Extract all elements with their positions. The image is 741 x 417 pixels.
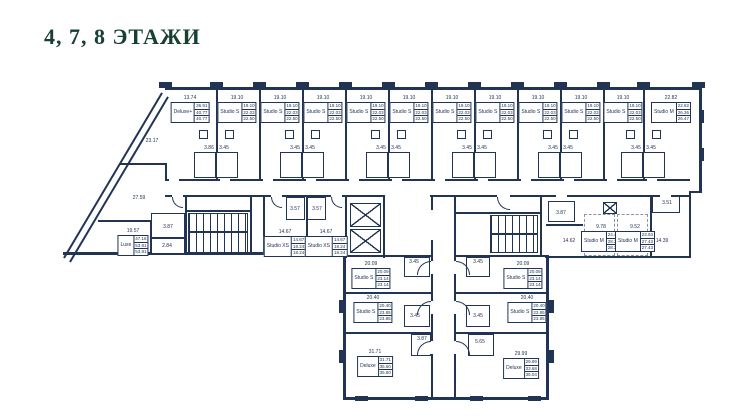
wall bbox=[185, 196, 187, 255]
unit-room-area: 20.40 bbox=[521, 295, 534, 301]
corridor-wall bbox=[454, 196, 456, 397]
unit-areas-box: Studio XS 14.67 18.24 18.24 bbox=[305, 236, 348, 257]
unit-label: 19.57 Luxe 47.16 53.81 53.81 bbox=[117, 228, 148, 256]
room-area-label: 3.45 bbox=[477, 145, 487, 151]
unit-type: Studio M bbox=[652, 103, 676, 122]
unit-label: 31.71 Deluxe 31.71 35.60 35.60 bbox=[357, 349, 393, 377]
wall bbox=[689, 193, 691, 258]
unit-label: 19.10 Studio S 19.10 22.03 22.50 bbox=[603, 95, 642, 123]
unit-area-values: 19.10 22.03 22.50 bbox=[627, 103, 641, 122]
unit-area-values: 20.09 23.14 23.14 bbox=[375, 269, 389, 288]
unit-room-area: 19.10 bbox=[532, 95, 545, 101]
unit-areas-box: Luxe 47.16 53.81 53.81 bbox=[117, 235, 148, 256]
unit-area-3: 18.24 bbox=[292, 249, 305, 256]
unit-areas-box: Deluxe 29.99 33.68 35.04 bbox=[503, 358, 539, 379]
wall bbox=[455, 212, 540, 214]
room-area-label: 23.17 bbox=[146, 138, 159, 144]
door-gap bbox=[349, 179, 359, 181]
pier bbox=[339, 82, 352, 88]
unit-room-area: 14.67 bbox=[320, 229, 333, 235]
unit-area-values: 19.10 22.03 22.50 bbox=[370, 103, 384, 122]
unit-area-3: 27.43 bbox=[641, 244, 654, 251]
unit-room-area: 20.09 bbox=[365, 261, 378, 267]
unit-areas-box: Studio XS 14.67 18.24 18.24 bbox=[264, 236, 307, 257]
unit-areas-box: Studio S 20.09 23.14 23.14 bbox=[351, 268, 390, 289]
bathroom bbox=[194, 152, 216, 178]
pier bbox=[339, 350, 344, 363]
floor-plan: 13.74 Deluxe+ 36.91 40.77 40.77 19.10 St… bbox=[0, 0, 741, 417]
unit-area-3: 22.50 bbox=[414, 115, 427, 122]
unit-area-values: 36.91 40.77 40.77 bbox=[194, 103, 208, 122]
unit-room-area: 19.10 bbox=[489, 95, 502, 101]
room-area-label: 3.51 bbox=[662, 200, 672, 206]
pier bbox=[253, 82, 266, 88]
pier bbox=[699, 148, 704, 161]
unit-areas-box: Studio S 19.10 22.03 22.50 bbox=[603, 102, 642, 123]
door-arc bbox=[497, 197, 510, 210]
unit-area-3: 35.04 bbox=[525, 371, 538, 378]
room-area-label: 3.45 bbox=[391, 145, 401, 151]
unit-area-3: 53.81 bbox=[134, 248, 147, 255]
wall bbox=[456, 292, 546, 294]
room-area-label: 3.57 bbox=[312, 206, 322, 212]
door-gap bbox=[556, 195, 567, 197]
wall bbox=[165, 163, 167, 180]
door-gap bbox=[220, 179, 230, 181]
unit-area-values: 19.10 22.03 22.50 bbox=[542, 103, 556, 122]
pier bbox=[549, 350, 554, 363]
room-area-label: 3.86 bbox=[204, 145, 214, 151]
unit-area-values: 20.09 23.14 23.14 bbox=[527, 269, 541, 288]
door-arc bbox=[172, 197, 183, 208]
pier bbox=[549, 300, 554, 313]
room-area-label: 3.45 bbox=[409, 259, 419, 265]
unit-area-values: 19.10 22.03 22.50 bbox=[284, 103, 298, 122]
unit-room-area: 19.10 bbox=[360, 95, 373, 101]
room-area-label: 3.45 bbox=[631, 145, 641, 151]
pier bbox=[637, 82, 650, 88]
room-area-label: 14.62 bbox=[563, 238, 576, 244]
room-area-label: 14.39 bbox=[656, 238, 669, 244]
unit-type: Studio M bbox=[616, 232, 640, 251]
unit-type: Studio S bbox=[261, 103, 284, 122]
wall bbox=[120, 163, 167, 165]
unit-room-area: 19.57 bbox=[127, 228, 140, 234]
door-gap bbox=[564, 179, 574, 181]
unit-areas-box: Studio S 19.10 22.03 22.50 bbox=[561, 102, 600, 123]
unit-area-values: 47.16 53.81 53.81 bbox=[133, 236, 147, 255]
unit-areas-box: Studio S 19.10 22.03 22.50 bbox=[389, 102, 428, 123]
room-area-label: 3.45 bbox=[462, 145, 472, 151]
unit-areas-box: Studio M 23.93 27.43 27.43 bbox=[615, 231, 655, 252]
room-area-label: 3.45 bbox=[290, 145, 300, 151]
unit-label: 19.10 Studio S 19.10 22.03 22.50 bbox=[518, 95, 557, 123]
stair-landing bbox=[188, 231, 248, 233]
kitchen-fixture bbox=[285, 130, 294, 139]
unit-room-area: 29.99 bbox=[515, 351, 528, 357]
unit-label: 9.52 Studio M 23.93 27.43 27.43 bbox=[615, 224, 655, 252]
wall bbox=[185, 210, 252, 212]
unit-label: 19.10 Studio S 19.10 22.03 22.50 bbox=[475, 95, 514, 123]
unit-type: Studio M bbox=[582, 232, 606, 251]
pier bbox=[296, 82, 309, 88]
unit-type: Studio S bbox=[562, 103, 585, 122]
room-area-label: 3.45 bbox=[473, 259, 483, 265]
door-gap bbox=[392, 179, 402, 181]
unit-type: Deluxe+ bbox=[172, 103, 194, 122]
unit-room-area: 14.67 bbox=[279, 229, 292, 235]
room-area-label: 27.59 bbox=[133, 195, 146, 201]
pier bbox=[554, 82, 567, 88]
unit-area-3: 35.60 bbox=[379, 369, 392, 376]
door-arc bbox=[271, 197, 282, 208]
wall bbox=[383, 196, 385, 258]
door-gap bbox=[169, 179, 179, 181]
unit-areas-box: Studio S 19.10 22.03 22.50 bbox=[260, 102, 299, 123]
unit-type: Studio S bbox=[433, 103, 456, 122]
unit-area-3: 23.85 bbox=[532, 315, 545, 322]
unit-label: 13.74 Deluxe+ 36.91 40.77 40.77 bbox=[171, 95, 210, 123]
elevator-shaft bbox=[350, 203, 381, 227]
staircase bbox=[188, 213, 248, 253]
pier bbox=[528, 396, 541, 401]
pier bbox=[382, 82, 395, 88]
pier bbox=[339, 300, 344, 313]
unit-area-3: 26.47 bbox=[677, 115, 690, 122]
bathroom bbox=[280, 152, 302, 178]
room-area-label: 2.84 bbox=[162, 243, 172, 249]
kitchen-fixture bbox=[483, 130, 492, 139]
unit-type: Studio S bbox=[347, 103, 370, 122]
wall bbox=[343, 397, 549, 400]
unit-label: 20.09 Studio S 20.09 23.14 23.14 bbox=[503, 261, 542, 289]
room-area-label: 3.87 bbox=[556, 210, 566, 216]
unit-area-3: 22.50 bbox=[543, 115, 556, 122]
unit-areas-box: Studio S 19.10 22.03 22.50 bbox=[475, 102, 514, 123]
room-area-label: 3.45 bbox=[410, 313, 420, 319]
bathroom bbox=[216, 152, 238, 178]
unit-area-values: 20.40 23.85 23.85 bbox=[377, 303, 391, 322]
unit-type: Studio S bbox=[304, 103, 327, 122]
unit-area-3: 22.50 bbox=[371, 115, 384, 122]
unit-area-values: 14.67 18.24 18.24 bbox=[332, 237, 346, 256]
unit-room-area: 9.52 bbox=[630, 224, 640, 230]
unit-areas-box: Studio S 20.40 23.85 23.85 bbox=[353, 302, 392, 323]
wall bbox=[546, 255, 549, 400]
room-area-label: 3.45 bbox=[376, 145, 386, 151]
unit-area-values: 19.10 22.03 22.50 bbox=[241, 103, 255, 122]
unit-room-area: 20.09 bbox=[517, 261, 530, 267]
unit-room-area: 19.10 bbox=[446, 95, 459, 101]
room-area-label: 3.45 bbox=[473, 313, 483, 319]
room-area-label: 3.45 bbox=[219, 145, 229, 151]
bathroom bbox=[621, 152, 643, 178]
pier bbox=[415, 396, 428, 401]
shaft bbox=[603, 202, 617, 214]
unit-areas-box: Studio S 20.09 23.14 23.14 bbox=[503, 268, 542, 289]
wall bbox=[545, 256, 691, 258]
bathroom bbox=[474, 152, 496, 178]
unit-area-3: 23.85 bbox=[378, 315, 391, 322]
pier bbox=[692, 82, 705, 88]
room-area-label: 3.45 bbox=[646, 145, 656, 151]
door-arc bbox=[331, 197, 342, 208]
unit-label: 19.10 Studio S 19.10 22.03 22.50 bbox=[389, 95, 428, 123]
elevator-shaft bbox=[350, 229, 381, 253]
unit-type: Studio S bbox=[354, 303, 377, 322]
unit-areas-box: Studio S 20.40 23.85 23.85 bbox=[507, 302, 546, 323]
unit-area-3: 23.14 bbox=[528, 281, 541, 288]
kitchen-fixture bbox=[652, 130, 661, 139]
kitchen-fixture bbox=[371, 130, 380, 139]
room-area-label: 3.45 bbox=[305, 145, 315, 151]
bathroom bbox=[468, 334, 494, 356]
unit-room-area: 19.10 bbox=[403, 95, 416, 101]
unit-label: 14.67 Studio XS 14.67 18.24 18.24 bbox=[264, 229, 307, 257]
unit-room-area: 20.40 bbox=[367, 295, 380, 301]
room-area-label: 3.45 bbox=[563, 145, 573, 151]
unit-areas-box: Deluxe+ 36.91 40.77 40.77 bbox=[171, 102, 210, 123]
unit-area-3: 23.14 bbox=[376, 281, 389, 288]
room-area-label: 3.57 bbox=[290, 206, 300, 212]
page: 4, 7, 8 ЭТАЖИ bbox=[0, 0, 741, 417]
door-gap bbox=[521, 179, 531, 181]
pier bbox=[468, 82, 481, 88]
unit-room-area: 31.71 bbox=[369, 349, 382, 355]
bathroom bbox=[388, 152, 410, 178]
unit-area-3: 22.50 bbox=[242, 115, 255, 122]
unit-area-3: 22.50 bbox=[328, 115, 341, 122]
room-area-label: 5.65 bbox=[475, 339, 485, 345]
unit-area-3: 18.24 bbox=[333, 249, 346, 256]
unit-area-3: 22.50 bbox=[500, 115, 513, 122]
pier bbox=[597, 82, 610, 88]
wall bbox=[345, 292, 431, 294]
bathroom bbox=[452, 152, 474, 178]
room-area-label: 3.87 bbox=[417, 336, 427, 342]
unit-type: Studio S bbox=[476, 103, 499, 122]
door-gap bbox=[435, 179, 445, 181]
unit-type: Deluxe bbox=[504, 359, 524, 378]
unit-type: Luxe bbox=[118, 236, 133, 255]
unit-type: Deluxe bbox=[358, 357, 378, 376]
unit-area-3: 40.77 bbox=[195, 115, 208, 122]
bathroom bbox=[302, 152, 324, 178]
unit-room-area: 19.10 bbox=[274, 95, 287, 101]
wall bbox=[250, 196, 252, 255]
unit-type: Studio S bbox=[218, 103, 241, 122]
unit-label: 19.10 Studio S 19.10 22.03 22.50 bbox=[561, 95, 600, 123]
bathroom bbox=[366, 152, 388, 178]
door-gap bbox=[263, 179, 273, 181]
bathroom bbox=[538, 152, 560, 178]
unit-area-values: 20.40 23.85 23.85 bbox=[531, 303, 545, 322]
unit-type: Studio S bbox=[508, 303, 531, 322]
wall bbox=[546, 224, 583, 226]
unit-label: 22.82 Studio M 22.82 26.36 26.47 bbox=[651, 95, 691, 123]
unit-room-area: 9.78 bbox=[596, 224, 606, 230]
unit-areas-box: Studio S 19.10 22.03 22.50 bbox=[518, 102, 557, 123]
unit-room-area: 19.10 bbox=[617, 95, 630, 101]
kitchen-fixture bbox=[626, 130, 635, 139]
unit-type: Studio S bbox=[519, 103, 542, 122]
unit-area-values: 19.10 22.03 22.50 bbox=[585, 103, 599, 122]
unit-type: Studio XS bbox=[306, 237, 332, 256]
unit-area-3: 22.50 bbox=[586, 115, 599, 122]
unit-area-values: 23.93 27.43 27.43 bbox=[640, 232, 654, 251]
unit-type: Studio XS bbox=[265, 237, 291, 256]
unit-area-3: 22.50 bbox=[285, 115, 298, 122]
kitchen-fixture bbox=[199, 130, 208, 139]
unit-area-values: 14.67 18.24 18.24 bbox=[291, 237, 305, 256]
pier bbox=[470, 396, 483, 401]
unit-room-area: 22.82 bbox=[665, 95, 678, 101]
unit-label: 20.40 Studio S 20.40 23.85 23.85 bbox=[353, 295, 392, 323]
unit-type: Studio S bbox=[504, 269, 527, 288]
bathroom bbox=[643, 152, 665, 178]
unit-areas-box: Studio S 19.10 22.03 22.50 bbox=[432, 102, 471, 123]
unit-areas-box: Studio S 19.10 22.03 22.50 bbox=[303, 102, 342, 123]
door-gap bbox=[647, 179, 657, 181]
wall bbox=[98, 220, 152, 222]
kitchen-fixture bbox=[311, 130, 320, 139]
pier bbox=[159, 82, 172, 88]
pier bbox=[355, 396, 368, 401]
stair-landing bbox=[490, 233, 538, 235]
unit-area-3: 22.50 bbox=[628, 115, 641, 122]
unit-areas-box: Studio M 22.82 26.36 26.47 bbox=[651, 102, 691, 123]
pier bbox=[699, 110, 704, 123]
unit-type: Studio S bbox=[390, 103, 413, 122]
unit-area-values: 29.99 33.68 35.04 bbox=[524, 359, 538, 378]
unit-area-values: 19.10 22.03 22.50 bbox=[413, 103, 427, 122]
door-arc bbox=[456, 301, 470, 315]
unit-area-values: 31.71 35.60 35.60 bbox=[378, 357, 392, 376]
unit-area-3: 22.50 bbox=[457, 115, 470, 122]
unit-area-values: 22.82 26.36 26.47 bbox=[676, 103, 690, 122]
unit-areas-box: Studio S 19.10 22.03 22.50 bbox=[217, 102, 256, 123]
opening bbox=[430, 210, 434, 240]
pier bbox=[511, 82, 524, 88]
unit-label: 19.10 Studio S 19.10 22.03 22.50 bbox=[303, 95, 342, 123]
kitchen-fixture bbox=[397, 130, 406, 139]
unit-room-area: 19.10 bbox=[231, 95, 244, 101]
unit-label: 19.10 Studio S 19.10 22.03 22.50 bbox=[432, 95, 471, 123]
kitchen-fixture bbox=[569, 130, 578, 139]
unit-room-area: 13.74 bbox=[184, 95, 197, 101]
kitchen-fixture bbox=[225, 130, 234, 139]
room-area-label: 3.45 bbox=[548, 145, 558, 151]
wall bbox=[343, 255, 346, 400]
door-gap bbox=[660, 195, 671, 197]
wall bbox=[540, 196, 542, 256]
unit-label: 29.99 Deluxe 29.99 33.68 35.04 bbox=[503, 351, 539, 379]
unit-room-area: 19.10 bbox=[317, 95, 330, 101]
unit-type: Studio S bbox=[352, 269, 375, 288]
unit-areas-box: Deluxe 31.71 35.60 35.60 bbox=[357, 356, 393, 377]
kitchen-fixture bbox=[543, 130, 552, 139]
unit-area-values: 19.10 22.03 22.50 bbox=[456, 103, 470, 122]
unit-area-values: 19.10 22.03 22.50 bbox=[499, 103, 513, 122]
unit-type: Studio S bbox=[604, 103, 627, 122]
unit-label: 20.09 Studio S 20.09 23.14 23.14 bbox=[351, 261, 390, 289]
unit-areas-box: Studio S 19.10 22.03 22.50 bbox=[346, 102, 385, 123]
unit-label: 20.40 Studio S 20.40 23.85 23.85 bbox=[507, 295, 546, 323]
unit-label: 19.10 Studio S 19.10 22.03 22.50 bbox=[260, 95, 299, 123]
door-gap bbox=[478, 179, 488, 181]
door-gap bbox=[306, 179, 316, 181]
room-area-label: 3.87 bbox=[163, 224, 173, 230]
pier bbox=[425, 82, 438, 88]
unit-label: 19.10 Studio S 19.10 22.03 22.50 bbox=[346, 95, 385, 123]
unit-area-values: 19.10 22.03 22.50 bbox=[327, 103, 341, 122]
kitchen-fixture bbox=[457, 130, 466, 139]
unit-label: 19.10 Studio S 19.10 22.03 22.50 bbox=[217, 95, 256, 123]
wall bbox=[699, 87, 702, 193]
bathroom bbox=[560, 152, 582, 178]
door-gap bbox=[607, 179, 617, 181]
unit-room-area: 19.10 bbox=[575, 95, 588, 101]
unit-label: 14.67 Studio XS 14.67 18.24 18.24 bbox=[305, 229, 348, 257]
pier bbox=[210, 82, 223, 88]
